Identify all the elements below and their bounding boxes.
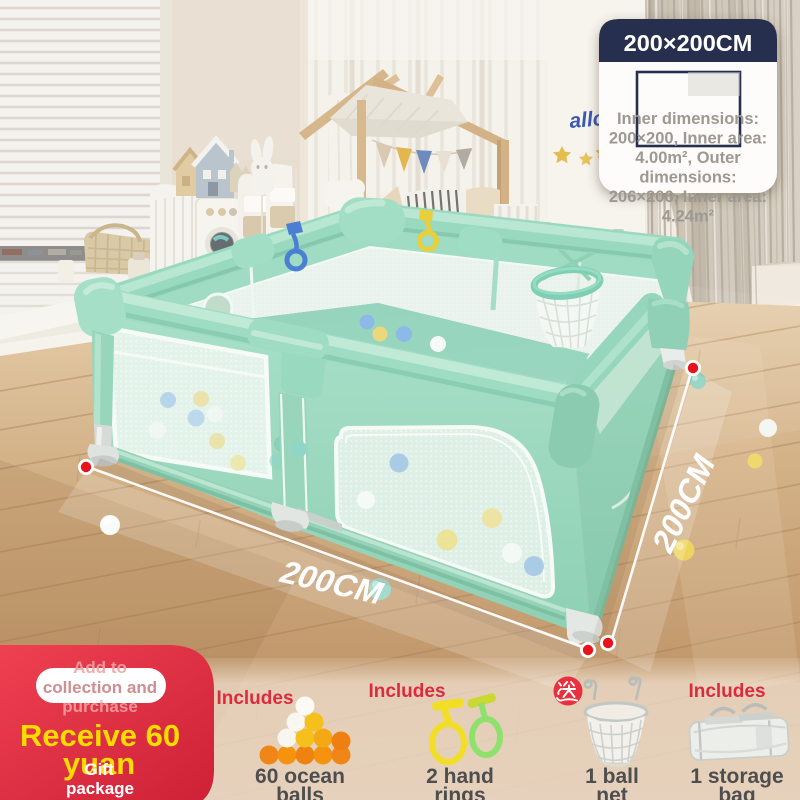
svg-text:200×200, Inner area:: 200×200, Inner area:: [609, 130, 767, 148]
svg-text:Includes: Includes: [688, 681, 765, 702]
svg-text:rings: rings: [434, 784, 485, 800]
svg-text:200×200CM: 200×200CM: [624, 30, 753, 56]
svg-text:bag: bag: [718, 784, 755, 800]
svg-text:collection and: collection and: [43, 678, 157, 697]
svg-text:Inner dimensions:: Inner dimensions:: [617, 110, 759, 128]
svg-text:Includes: Includes: [368, 681, 445, 702]
svg-text:206×206, Inner area:: 206×206, Inner area:: [609, 188, 767, 206]
svg-text:4.24m²: 4.24m²: [662, 208, 715, 226]
svg-text:Includes: Includes: [216, 688, 293, 709]
svg-text:net: net: [596, 784, 628, 800]
svg-text:purchase: purchase: [62, 697, 138, 716]
svg-text:balls: balls: [276, 784, 324, 800]
svg-text:Add to: Add to: [73, 658, 127, 677]
svg-text:4.00m², Outer: 4.00m², Outer: [635, 149, 741, 167]
svg-text:dimensions:: dimensions:: [639, 169, 736, 187]
svg-text:Gift: Gift: [84, 760, 114, 779]
svg-text:package: package: [66, 779, 134, 798]
